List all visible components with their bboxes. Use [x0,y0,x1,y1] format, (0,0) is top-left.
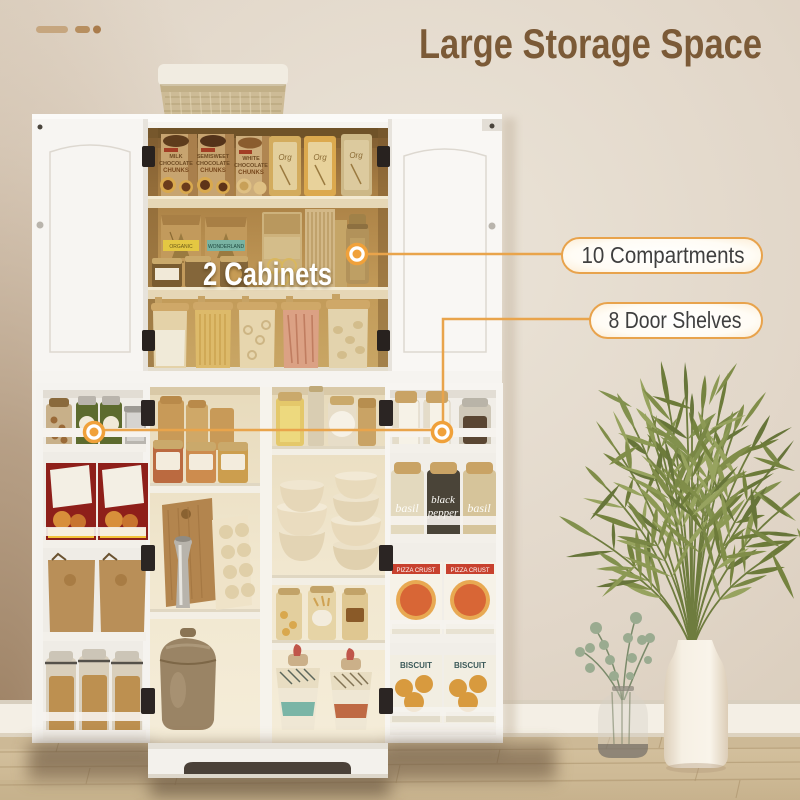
svg-text:CHUNKS: CHUNKS [238,170,264,176]
svg-text:CHOCOLATE: CHOCOLATE [159,161,193,167]
svg-text:basil: basil [395,501,419,515]
svg-text:WHITE: WHITE [242,156,260,162]
svg-text:CHUNKS: CHUNKS [200,168,226,174]
svg-text:Org: Org [313,153,327,162]
svg-text:CHOCOLATE: CHOCOLATE [196,161,230,167]
svg-text:PIZZA CRUST: PIZZA CRUST [450,568,489,574]
svg-text:2 Cabinets: 2 Cabinets [203,256,332,292]
svg-text:SEMISWEET: SEMISWEET [197,154,230,160]
svg-text:black: black [431,494,456,506]
svg-text:WONDERLAND: WONDERLAND [208,244,245,250]
svg-text:Org: Org [278,153,292,162]
svg-text:Large Storage Space: Large Storage Space [419,20,762,67]
svg-text:PIZZA CRUST: PIZZA CRUST [396,568,435,574]
svg-text:ORGANIC: ORGANIC [169,244,193,250]
svg-text:basil: basil [467,501,491,515]
svg-text:MILK: MILK [169,154,182,160]
svg-text:10 Compartments: 10 Compartments [582,242,745,268]
svg-text:CHOCOLATE: CHOCOLATE [234,163,268,169]
svg-text:8 Door Shelves: 8 Door Shelves [609,307,742,333]
svg-text:Org: Org [349,151,363,160]
svg-text:BISCUIT: BISCUIT [400,661,432,670]
svg-text:BISCUIT: BISCUIT [454,661,486,670]
svg-text:CHUNKS: CHUNKS [163,168,189,174]
